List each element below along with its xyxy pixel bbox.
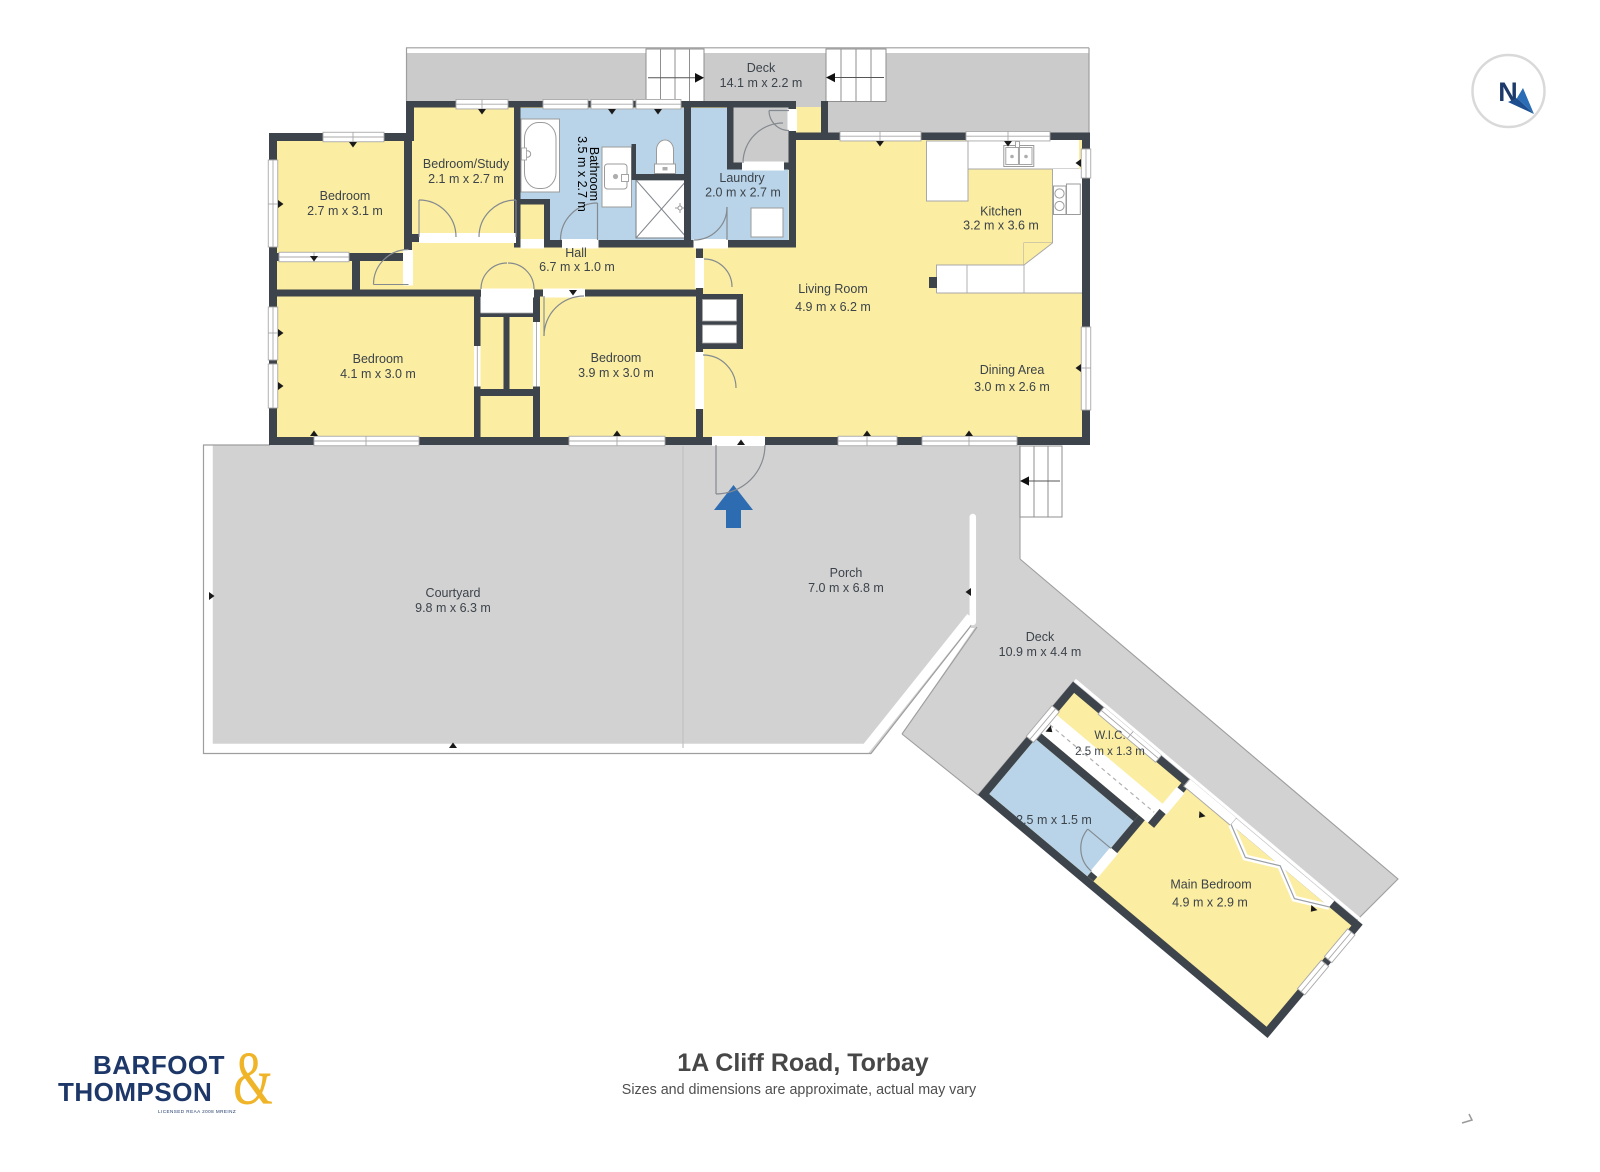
svg-text:W.I.C.: W.I.C. [1094,730,1125,742]
svg-text:Kitchen: Kitchen [980,205,1022,219]
svg-text:3.9 m x 3.0 m: 3.9 m x 3.0 m [578,366,654,380]
svg-text:Sizes and dimensions are appro: Sizes and dimensions are approximate, ac… [622,1082,977,1098]
svg-text:Bedroom: Bedroom [353,352,404,366]
svg-text:Laundry: Laundry [719,171,765,185]
svg-text:3.5 m x 2.7 m: 3.5 m x 2.7 m [575,136,589,212]
svg-text:Deck: Deck [747,61,776,75]
svg-text:1A Cliff Road, Torbay: 1A Cliff Road, Torbay [677,1049,929,1077]
svg-text:Bedroom: Bedroom [320,189,371,203]
svg-text:Bedroom/Study: Bedroom/Study [423,157,510,171]
svg-text:3.2 m x 3.6 m: 3.2 m x 3.6 m [963,219,1039,233]
svg-text:4.9 m x 2.9 m: 4.9 m x 2.9 m [1172,896,1248,910]
svg-text:10.9 m x 4.4 m: 10.9 m x 4.4 m [999,645,1082,659]
svg-text:&: & [233,1037,273,1122]
svg-text:3.0 m x 2.6 m: 3.0 m x 2.6 m [974,380,1050,394]
svg-text:2.0 m x 2.7 m: 2.0 m x 2.7 m [705,186,781,200]
svg-text:4.1 m x 3.0 m: 4.1 m x 3.0 m [340,367,416,381]
svg-text:2.5 m x 1.3 m: 2.5 m x 1.3 m [1075,746,1145,758]
svg-text:THOMPSON: THOMPSON [58,1077,212,1107]
svg-text:Dining Area: Dining Area [980,363,1045,377]
svg-text:4.9 m x 6.2 m: 4.9 m x 6.2 m [795,300,871,314]
svg-text:Porch: Porch [830,566,863,580]
svg-text:2.1 m x 2.7 m: 2.1 m x 2.7 m [428,172,504,186]
svg-text:Living Room: Living Room [798,282,867,296]
svg-text:7.0 m x 6.8 m: 7.0 m x 6.8 m [808,581,884,595]
svg-text:BARFOOT: BARFOOT [93,1050,225,1080]
svg-text:LICENSED REAA 2008 MREINZ: LICENSED REAA 2008 MREINZ [158,1109,236,1114]
svg-text:14.1 m x 2.2 m: 14.1 m x 2.2 m [720,76,803,90]
svg-text:9.8 m x 6.3 m: 9.8 m x 6.3 m [415,601,491,615]
svg-text:2.5 m x 1.5 m: 2.5 m x 1.5 m [1016,813,1092,827]
svg-text:Hall: Hall [565,246,587,260]
svg-text:Deck: Deck [1026,630,1055,644]
svg-text:Bedroom: Bedroom [591,351,642,365]
svg-text:2.7 m x 3.1 m: 2.7 m x 3.1 m [307,204,383,218]
svg-text:6.7 m x 1.0 m: 6.7 m x 1.0 m [539,260,615,274]
svg-text:Courtyard: Courtyard [426,586,481,600]
svg-text:Main Bedroom: Main Bedroom [1170,878,1251,892]
